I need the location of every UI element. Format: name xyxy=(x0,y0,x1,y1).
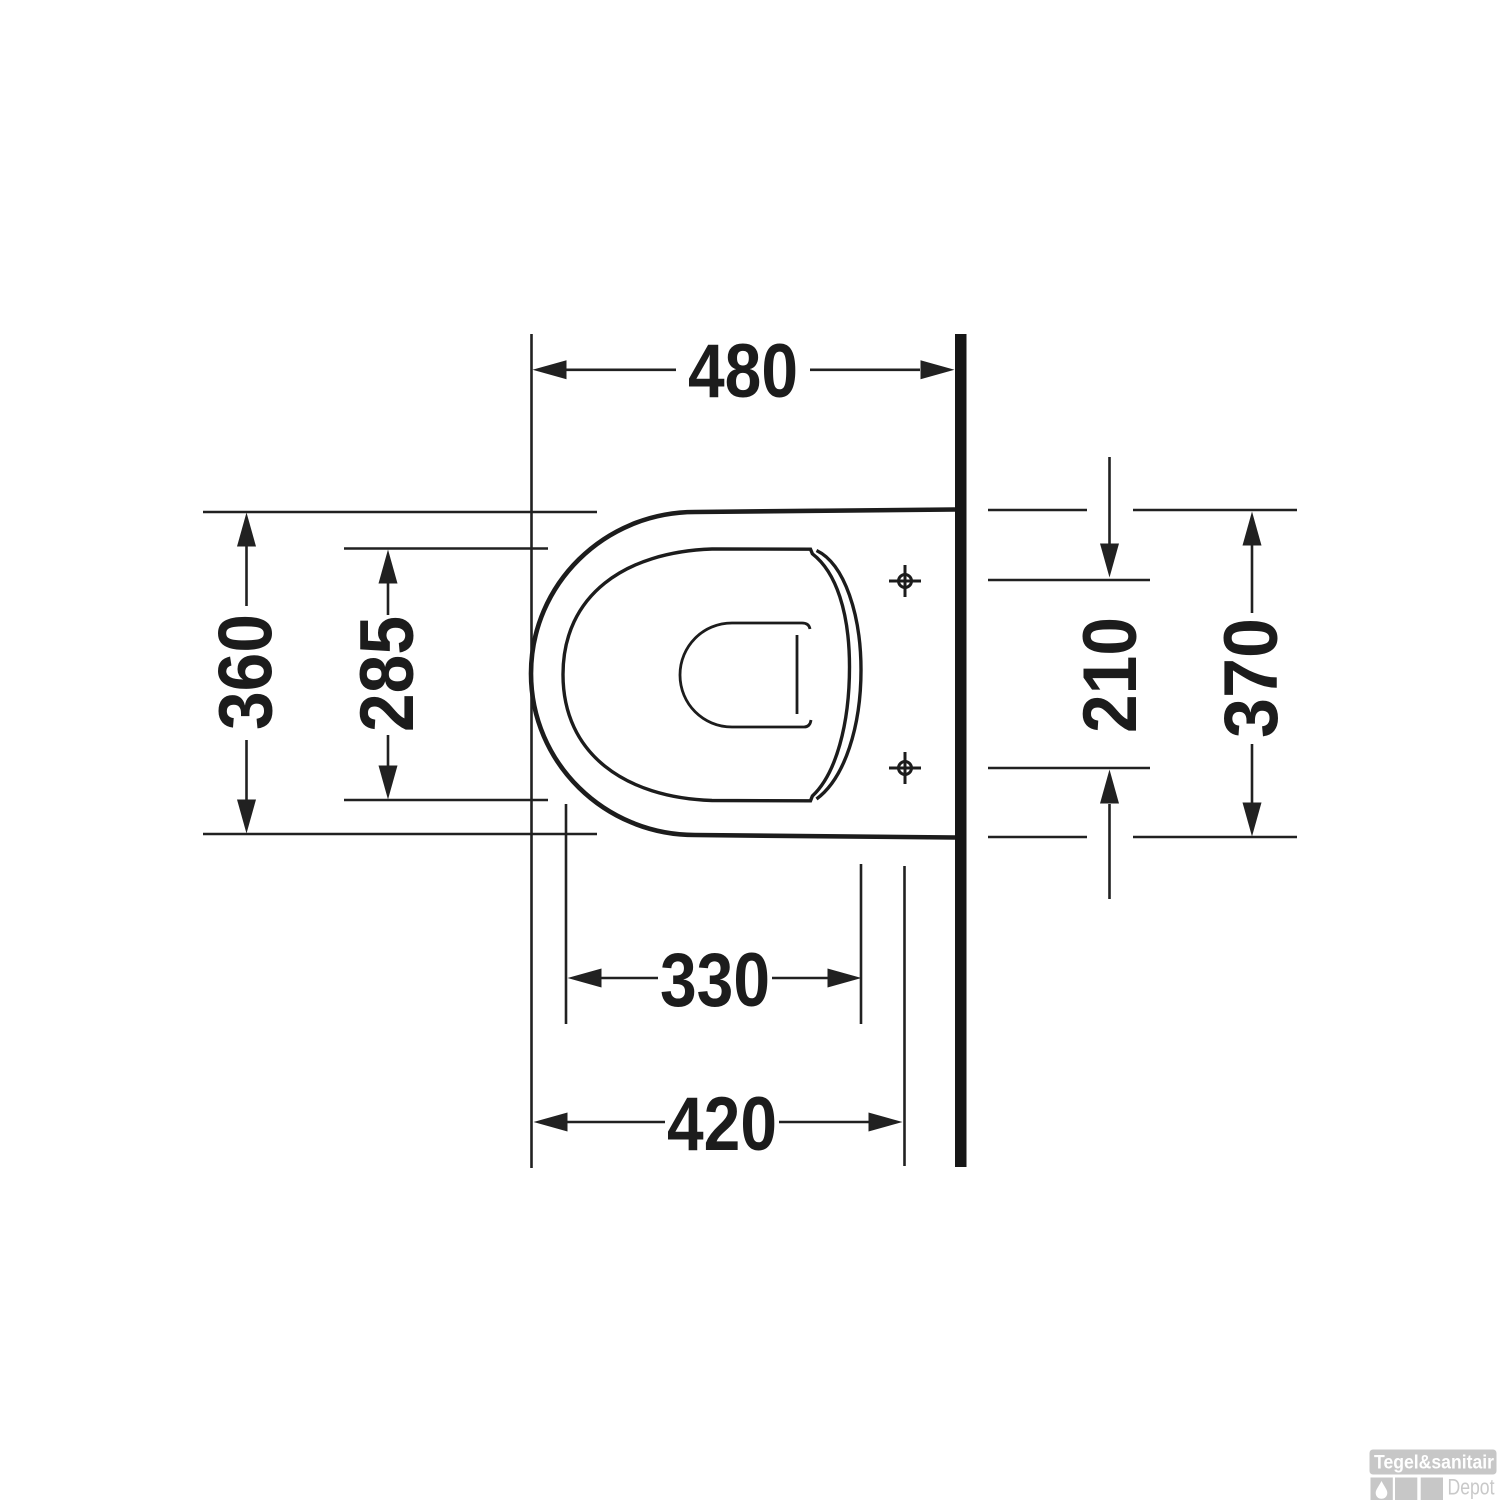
svg-text:370: 370 xyxy=(1209,618,1294,738)
svg-text:Tegel&sanitair: Tegel&sanitair xyxy=(1374,1452,1494,1474)
svg-text:330: 330 xyxy=(660,938,770,1023)
svg-text:285: 285 xyxy=(345,616,430,732)
svg-text:210: 210 xyxy=(1068,617,1153,733)
svg-text:420: 420 xyxy=(667,1082,777,1167)
svg-text:480: 480 xyxy=(688,329,798,414)
svg-text:360: 360 xyxy=(204,614,289,730)
svg-text:Depot: Depot xyxy=(1448,1475,1495,1500)
